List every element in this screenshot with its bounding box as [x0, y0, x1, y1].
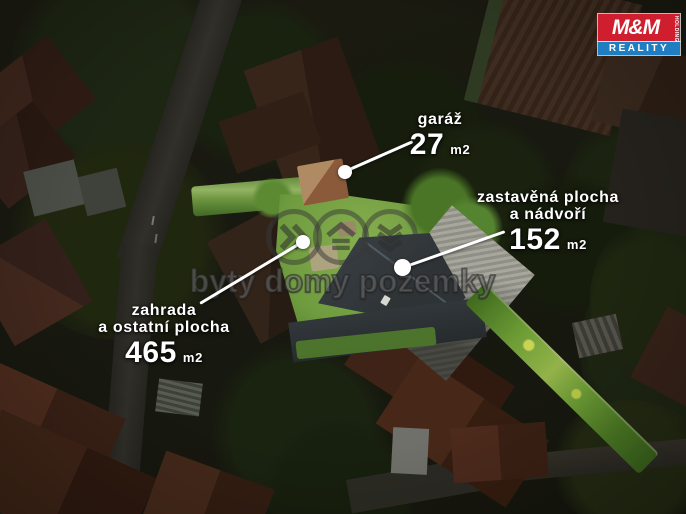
garage-area-value: 27: [410, 132, 445, 158]
built-area-pointer-dot: [394, 259, 411, 276]
garden-area-value: 465: [125, 340, 177, 366]
mossy-roof-edge: [464, 0, 510, 103]
watermark-circle: [362, 209, 418, 265]
stacked-chevrons-down-icon: [370, 217, 410, 257]
house-roof: [450, 422, 549, 483]
built-area-value: 152: [509, 227, 561, 253]
garage-pointer-dot: [338, 165, 352, 179]
garden-area-unit: m2: [183, 349, 203, 366]
agency-logo: M&M HOLDING REALITY: [598, 14, 680, 55]
garden-label-line2: a ostatní plocha: [84, 319, 244, 336]
aerial-photo: byty domy pozemky garáž 27 m2 zastavěná …: [0, 0, 686, 514]
built-area-label: zastavěná plocha a nádvoří 152 m2: [468, 189, 628, 253]
logo-holding-text: HOLDING: [673, 16, 679, 42]
garden-pointer-dot: [296, 235, 310, 249]
logo-division-text: REALITY: [609, 43, 669, 54]
logo-blue-bar: REALITY: [598, 42, 680, 55]
house-icon: [321, 217, 361, 257]
logo-red-box: M&M HOLDING: [598, 14, 680, 41]
garage-area-unit: m2: [450, 141, 470, 158]
logo-brand-text: M&M: [612, 16, 666, 40]
watermark-text: byty domy pozemky: [170, 263, 515, 300]
built-area-label-line2: a nádvoří: [468, 206, 628, 223]
flat-light-roof: [391, 427, 429, 475]
hedge-highlight-spot: [568, 386, 584, 402]
garage-label: garáž 27 m2: [390, 111, 490, 158]
garden-label-line1: zahrada: [84, 302, 244, 319]
greenhouse-roof: [155, 378, 203, 416]
garden-label: zahrada a ostatní plocha 465 m2: [84, 302, 244, 366]
watermark-circle: [313, 209, 369, 265]
hedge-highlight-spot: [520, 336, 538, 354]
built-area-label-line1: zastavěná plocha: [468, 189, 628, 206]
garage-label-title: garáž: [390, 111, 490, 128]
built-area-unit: m2: [567, 236, 587, 253]
